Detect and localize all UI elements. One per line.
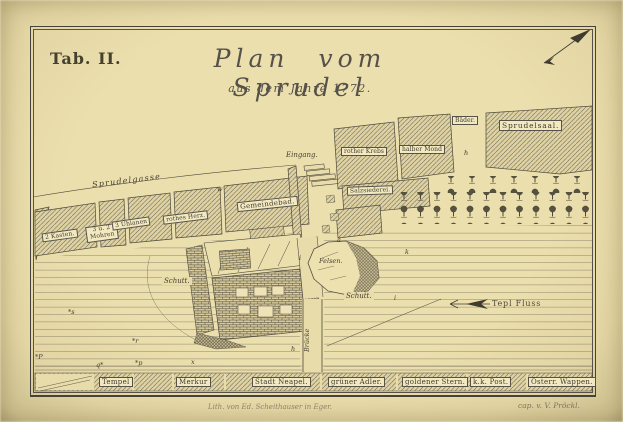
ref-mark: a — [337, 237, 341, 244]
lithographer-credit: Lith. von Ed. Scheithauser in Eger. — [200, 403, 340, 411]
ref-mark: q* — [96, 362, 103, 369]
building-label-salzsiederei: Salzsiederei. — [347, 185, 394, 196]
building-label-rother-krebs: rother Krebs — [341, 147, 387, 156]
entrance-label: Eingang. — [286, 151, 318, 159]
building-label-gruener-adler: grüner Adler. — [328, 377, 385, 387]
ref-mark: *p — [135, 360, 142, 367]
bridge-label: Brücke — [304, 329, 312, 353]
north-arrow — [544, 29, 591, 65]
building-label-goldener-stern: goldener Stern. — [402, 377, 468, 387]
debris-right-label: Schutt. — [344, 292, 374, 300]
building-label-halber-mond: halber Mond — [399, 145, 445, 154]
building-label-sprudelsaal: Sprudelsaal. — [499, 120, 562, 131]
building-label-kk-post: k.k. Post. — [470, 377, 511, 387]
ref-mark: i — [394, 295, 396, 302]
ref-mark: w — [217, 186, 223, 193]
cartographer-credit: cap. v. V. Pröckl. — [518, 401, 580, 410]
river-label: Tepl Fluss — [492, 299, 541, 309]
entrance-steps — [304, 162, 341, 187]
building-label-oesterr-wappen: Österr. Wappen. — [528, 377, 596, 387]
ref-mark: k — [405, 249, 409, 256]
ref-mark: *s — [68, 309, 75, 316]
ref-mark: *P — [35, 354, 43, 361]
plate-number: Tab. II. — [50, 49, 122, 68]
ref-mark: i — [299, 255, 301, 262]
map-subtitle: aus dem Jahre 1772. — [190, 82, 410, 95]
ref-mark: h — [464, 150, 468, 157]
building-label-baeder: Bäder. — [452, 116, 478, 125]
ref-mark: h — [291, 346, 295, 353]
rock-label: Felsen. — [319, 258, 343, 266]
historic-map-page: Tab. II. Plan vom Sprudel aus dem Jahre … — [0, 0, 623, 422]
ref-mark: *r — [132, 338, 138, 345]
building-label-stadt-neapel: Stadt Neapel. — [252, 377, 311, 387]
debris-left-label: Schutt. — [162, 277, 192, 285]
ref-mark: x — [191, 359, 195, 366]
building-label-merkur: Merkur — [176, 377, 211, 387]
building-label-tempel: Tempel — [99, 377, 133, 387]
